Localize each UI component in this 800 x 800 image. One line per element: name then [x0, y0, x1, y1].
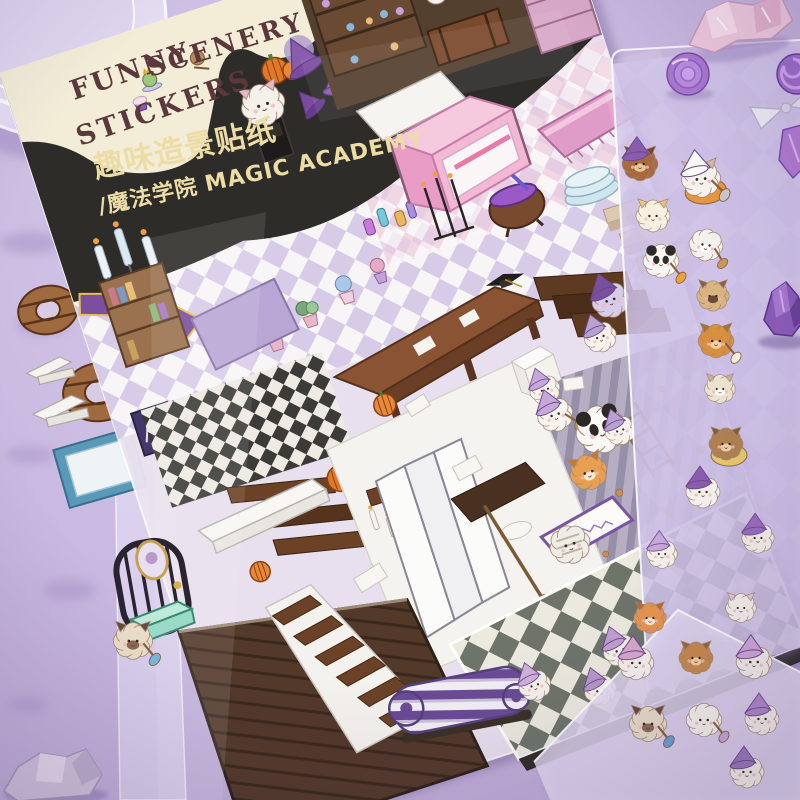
- photo-canvas: FUNNY SCENERY STICKERS 趣味造景贴纸 /魔法学院MAGIC…: [0, 0, 800, 800]
- vignette-overlay: [0, 0, 800, 800]
- product-photo-sticker-sheets: FUNNY SCENERY STICKERS 趣味造景贴纸 /魔法学院MAGIC…: [0, 0, 800, 800]
